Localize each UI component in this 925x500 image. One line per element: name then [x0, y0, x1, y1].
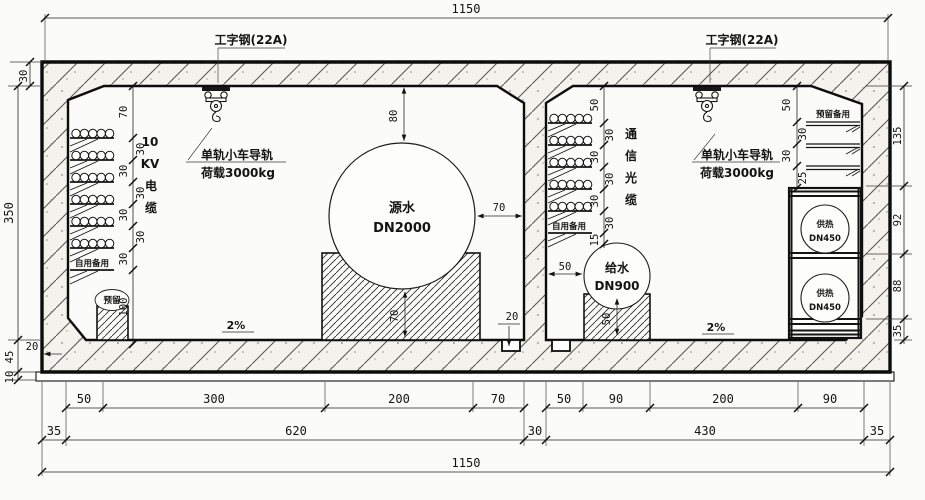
- heat-pipe-rack: 供热 DN450 供热 DN450: [789, 188, 861, 338]
- chain-dim: 30: [118, 165, 130, 178]
- chain-dim: 70: [118, 106, 130, 119]
- spare-tray-label: 自用备用: [75, 258, 109, 269]
- cable-tray: [548, 114, 592, 137]
- spare-cable-tray: [70, 270, 114, 284]
- cable-tray: [548, 136, 592, 159]
- row1-dim: 200: [712, 392, 734, 406]
- dim-right: 135: [892, 127, 904, 146]
- rchain-dim: 25: [797, 172, 809, 185]
- dim-overall-bottom: 1150: [452, 456, 481, 470]
- dim-50: 50: [559, 261, 572, 273]
- dim-ped-70: 70: [389, 310, 401, 323]
- dim-right: 92: [892, 214, 904, 227]
- row1-dim: 50: [557, 392, 571, 406]
- heat-pipe-size: DN450: [809, 234, 841, 244]
- spare-tray-label: 自用备用: [552, 221, 586, 232]
- slope-label: 2%: [707, 321, 726, 334]
- chain-dim: 30: [604, 173, 616, 186]
- reserved-flat-tray: [806, 166, 860, 176]
- row2-dim: 620: [285, 424, 307, 438]
- cable-tray: [70, 151, 114, 174]
- heat-pipe-name: 供热: [815, 288, 834, 299]
- rchain-dim: 30: [781, 150, 793, 163]
- dim-slab: 45: [4, 351, 16, 364]
- monorail-hoist: [202, 87, 230, 122]
- chain-dim: 30: [604, 129, 616, 142]
- row1-dim: 90: [609, 392, 623, 406]
- chain-dim: 15: [589, 234, 601, 247]
- pipe-size: DN2000: [373, 221, 431, 236]
- chain-dim: 30: [118, 209, 130, 222]
- monorail-hoist: [693, 87, 721, 122]
- dim-right: 88: [892, 280, 904, 293]
- drain-gutter-right: [552, 340, 570, 351]
- cable-tray: [548, 158, 592, 181]
- row1-dim: 200: [388, 392, 410, 406]
- rail-label-2: 荷载3000kg: [200, 165, 275, 180]
- dim-70: 70: [493, 202, 506, 214]
- chain-dim: 30: [589, 151, 601, 164]
- rchain-dim: 30: [797, 128, 809, 141]
- chain-dim: 50: [589, 99, 601, 112]
- heat-pipe-name: 供热: [815, 219, 834, 230]
- pipe-size: DN900: [594, 279, 639, 293]
- chain-dim: 30: [135, 231, 147, 244]
- dim-80: 80: [388, 110, 400, 123]
- row2-dim: 35: [870, 424, 884, 438]
- dim-right: 35: [892, 325, 904, 338]
- dim-overall-top: 1150: [452, 2, 481, 16]
- dim-roof: 30: [18, 70, 30, 83]
- cable-text: 10: [142, 135, 159, 149]
- chain-dim: 30: [589, 195, 601, 208]
- chain-dim: 30: [604, 217, 616, 230]
- ibeam-label: 工字钢(22A): [706, 32, 779, 47]
- cable-tray: [70, 173, 114, 196]
- row1-dim: 90: [823, 392, 837, 406]
- cable-text: KV: [141, 157, 160, 171]
- chain-dim: 30: [118, 253, 130, 266]
- rail-label-1: 单轨小车导轨: [201, 147, 273, 162]
- reserved-flat-tray: [806, 122, 860, 132]
- cable-text: 缆: [145, 200, 157, 215]
- raw-water-pipe: [329, 143, 475, 289]
- ibeam-label: 工字钢(22A): [215, 32, 288, 47]
- slope-label: 2%: [227, 319, 246, 332]
- cable-text: 光: [624, 170, 637, 185]
- row1-dim: 300: [203, 392, 225, 406]
- cable-text: 电: [145, 178, 157, 193]
- reserved-trays-label: 预留备用: [816, 109, 850, 120]
- row2-dim: 30: [528, 424, 542, 438]
- row1-dim: 70: [491, 392, 505, 406]
- cable-tray: [70, 217, 114, 240]
- dim-ped-50: 50: [601, 313, 613, 326]
- dim-gutter-20: 20: [506, 311, 519, 323]
- cable-text: 通: [625, 126, 637, 141]
- heat-pipe-size: DN450: [809, 303, 841, 313]
- dim-bed: 10: [4, 371, 16, 384]
- dim-height: 350: [2, 202, 16, 224]
- cable-text: 缆: [625, 192, 637, 207]
- dim-curb: 20: [26, 341, 39, 353]
- drain-gutter-left: [502, 340, 520, 351]
- rchain-dim: 50: [781, 99, 793, 112]
- reserved-flat-tray: [806, 144, 860, 154]
- row2-dim: 35: [47, 424, 61, 438]
- row2-dim: 430: [694, 424, 716, 438]
- spare-cable-tray: [548, 233, 592, 247]
- pipe-name: 源水: [389, 200, 416, 216]
- cable-tray: [548, 180, 592, 203]
- chain-dim: 100: [118, 298, 130, 317]
- rail-label-2: 荷载3000kg: [699, 165, 774, 180]
- pipe-name: 给水: [605, 260, 630, 275]
- cable-tray: [70, 195, 114, 218]
- cable-tray: [70, 129, 114, 152]
- drawing-canvas: 自用备用 预留 源水 DN2000 工字钢(22A) 单轨小车导轨 荷载3000…: [0, 0, 925, 500]
- rail-label-1: 单轨小车导轨: [701, 147, 773, 162]
- utility-tunnel-cross-section: 自用备用 预留 源水 DN2000 工字钢(22A) 单轨小车导轨 荷载3000…: [0, 0, 925, 500]
- row1-dim: 50: [77, 392, 91, 406]
- cable-text: 信: [625, 148, 637, 163]
